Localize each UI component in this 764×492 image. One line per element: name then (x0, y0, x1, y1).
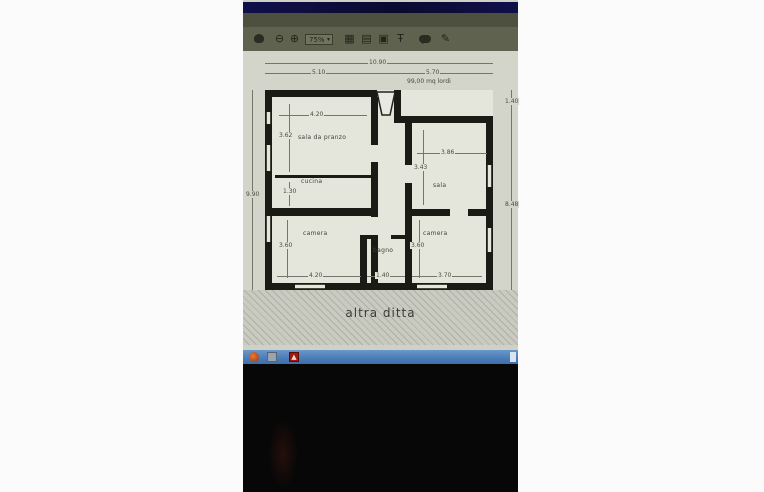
wall (371, 162, 378, 217)
room-label-sala-da-pranzo: sala da pranzo (298, 134, 346, 141)
wall (405, 123, 412, 165)
fit-width-icon[interactable]: ▦ (343, 32, 356, 45)
photo-of-monitor: ⊖ ⊕ 75%▾ ▦ ▤ ▣ Ŧ ✎ 10.90 5.10 5.70 99,00… (0, 0, 764, 492)
window-symbol (487, 165, 492, 187)
window-titlebar (243, 2, 518, 13)
floor-plan: sala da pranzo cucina sala camera bagno … (265, 90, 493, 290)
zoom-level-dropdown[interactable]: 75%▾ (305, 34, 333, 45)
room-label-camera-right: camera (423, 230, 447, 237)
wall (265, 208, 371, 216)
dim-camera-right-width: 3.70 (437, 272, 452, 279)
zoom-level-value: 75% (309, 36, 325, 44)
dim-left-height: 9.90 (245, 191, 260, 198)
dim-pranzo-height: 3.62 (278, 132, 293, 139)
room-label-camera-left: camera (303, 230, 327, 237)
wall (405, 183, 412, 216)
window-symbol (295, 284, 325, 289)
photo-reflection (268, 419, 298, 489)
wall (405, 216, 412, 283)
wall (371, 97, 378, 145)
zoom-in-icon[interactable]: ⊕ (288, 32, 301, 45)
pdf-toolbar: ⊖ ⊕ 75%▾ ▦ ▤ ▣ Ŧ ✎ (243, 27, 518, 52)
dim-cucina-height: 1.30 (282, 188, 297, 195)
dim-sala-height: 3.43 (413, 164, 428, 171)
dim-right-height-bottom: 8.48 (504, 201, 519, 208)
window-symbol (266, 112, 271, 124)
wall (394, 116, 493, 123)
zoom-out-icon[interactable]: ⊖ (273, 32, 286, 45)
browser-icon[interactable] (249, 352, 259, 362)
dim-total-width: 10.90 (368, 59, 387, 66)
wall (360, 235, 376, 239)
pencil-icon[interactable]: ✎ (439, 32, 452, 45)
dim-camera-left-width: 4.20 (308, 272, 323, 279)
taskbar-show-desktop[interactable] (510, 352, 516, 362)
wall (275, 175, 371, 178)
window-symbol (417, 284, 447, 289)
wall (265, 90, 377, 97)
dimension-line (419, 220, 420, 278)
dimension-line (287, 220, 288, 278)
wall (486, 116, 493, 290)
window-symbol (266, 145, 271, 171)
room-label-cucina: cucina (301, 178, 322, 185)
dim-right-width: 5.70 (425, 69, 440, 76)
dim-left-width: 5.10 (311, 69, 326, 76)
room-label-sala: sala (433, 182, 446, 189)
dim-bagno-width: 1.40 (375, 272, 390, 279)
screen-area: ⊖ ⊕ 75%▾ ▦ ▤ ▣ Ŧ ✎ 10.90 5.10 5.70 99,00… (243, 0, 518, 492)
menu-bar (243, 13, 518, 27)
comment-icon[interactable] (419, 35, 431, 43)
entry-stair-symbol (376, 91, 396, 116)
wall (468, 209, 493, 216)
dim-camera-right-height: 3.60 (410, 242, 425, 249)
taskbar: ▲ (243, 350, 518, 364)
wall (360, 235, 367, 283)
dimension-line (511, 90, 512, 290)
adobe-reader-icon[interactable]: ▲ (289, 352, 299, 362)
dim-sala-width: 3.86 (440, 149, 455, 156)
pdf-page[interactable]: 10.90 5.10 5.70 99,00 mq lordi 9.90 1.40… (243, 51, 518, 345)
caption-altra-ditta: altra ditta (243, 306, 518, 320)
dark-desktop-area (243, 364, 518, 492)
dim-pranzo-width: 4.20 (309, 111, 324, 118)
tools-icon[interactable]: Ŧ (394, 32, 407, 45)
hand-tool-icon[interactable] (254, 34, 264, 43)
wall (412, 209, 450, 216)
chevron-down-icon: ▾ (327, 35, 330, 45)
dim-camera-left-height: 3.60 (278, 242, 293, 249)
hatched-area: altra ditta (243, 290, 518, 345)
room-label-bagno: bagno (373, 247, 393, 254)
area-label: 99,00 mq lordi (406, 78, 452, 85)
fullscreen-icon[interactable]: ▣ (377, 32, 390, 45)
page-view-icon[interactable]: ▤ (360, 32, 373, 45)
wall (391, 235, 412, 239)
explorer-icon[interactable] (267, 352, 277, 362)
window-symbol (487, 228, 492, 252)
dim-right-height-top: 1.40 (504, 98, 519, 105)
dimension-line (252, 90, 253, 290)
